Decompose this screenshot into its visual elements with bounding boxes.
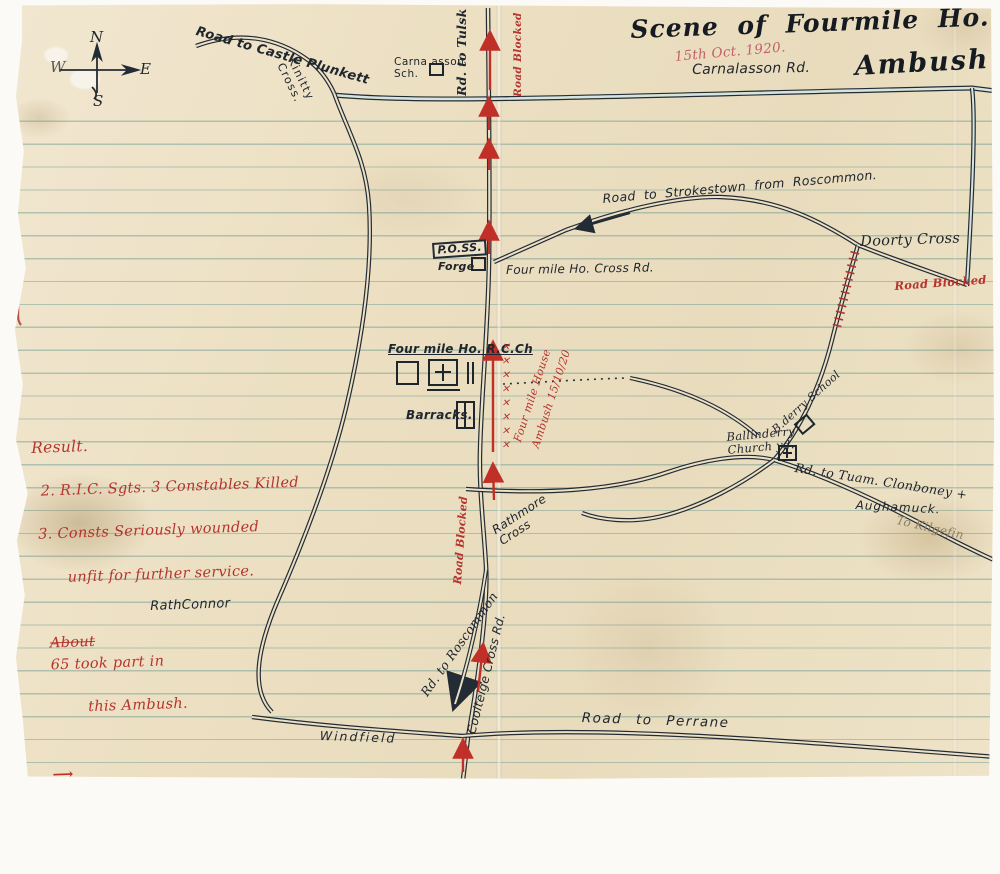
direction-arrow-icon: ⟶ — [52, 765, 74, 783]
result-note: Result. 2. R.I.C. Sgts. 3 Constables Kil… — [30, 405, 336, 874]
road-label-rd-to-tulsk: Rd. to Tulsk — [455, 8, 469, 96]
road-label-carnalasson: Carnalasson Rd. — [692, 61, 810, 79]
edge-red-marks — [16, 232, 23, 325]
compass-label-north: N — [90, 29, 103, 46]
place-label-barracks: Barracks. — [406, 409, 473, 422]
result-line: About 65 took part in — [49, 602, 329, 677]
result-line: Crossley Travelled. — [88, 820, 335, 850]
church-outbuilding — [397, 362, 418, 384]
compass-label-west: W — [50, 59, 66, 76]
result-line: this Ambush. — [88, 689, 331, 719]
place-label-forge: Forge — [438, 261, 474, 273]
road-label-fourmile-cross: Four mile Ho. Cross Rd. — [506, 261, 654, 277]
result-line: 2. R.I.C. Sgts. 3 Constables Killed — [40, 472, 323, 504]
church-gate — [468, 362, 473, 384]
compass-label-south: S — [93, 93, 104, 110]
result-line: ⟶ indicate the direction the — [51, 732, 333, 808]
compass-label-east: E — [140, 61, 151, 78]
result-line: 3. Consts Seriously wounded — [38, 515, 325, 547]
red-note-road-blocked-top: Road Blocked — [513, 12, 525, 97]
result-line4-rest: 65 took part in — [50, 653, 164, 673]
red-ambush-x-marks: ✕✕✕✕✕✕✕✕ — [500, 342, 511, 454]
old-road-dotted — [503, 378, 628, 384]
result-line6-text: indicate the direction the — [53, 782, 248, 805]
result-struck-word: About — [50, 634, 96, 652]
place-label-rc-church: Four mile Ho. R.C.Ch — [388, 343, 533, 356]
result-line: unfit for further service. — [67, 559, 326, 590]
result-heading: Result. — [31, 427, 322, 460]
compass-rose — [60, 45, 138, 99]
map-paper: Scene of Fourmile Ho. Ambush. 15th Oct. … — [14, 3, 995, 782]
scanned-map-document: { "document": { "title_line1": "Scene of… — [0, 0, 1000, 794]
church-cross-icon — [435, 364, 451, 381]
